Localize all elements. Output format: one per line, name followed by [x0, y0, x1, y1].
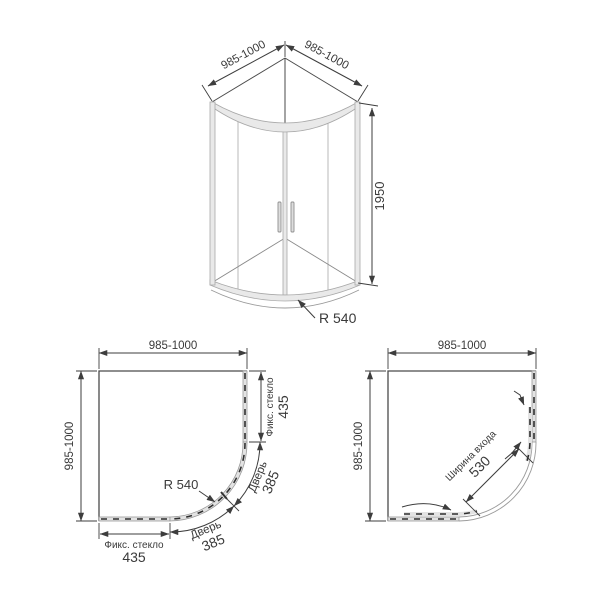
pc-dim-depth-label: 985-1000: [64, 422, 76, 471]
plan-open-view: 985-1000 985-1000 Ширина входа 530: [353, 340, 536, 521]
front-right-frame-post: [355, 102, 360, 285]
plan-closed-fixed-glass-side: [243, 371, 247, 442]
front-ext-height-top: [359, 103, 378, 106]
front-ext-corner-right: [358, 85, 368, 101]
front-dim-height-label: 1950: [372, 182, 387, 211]
front-radius-leader: [298, 300, 315, 318]
pc-ext-door-mid: [227, 499, 239, 511]
front-door-handle-left: [278, 202, 281, 232]
pc-fixed-bottom-value: 435: [122, 549, 146, 565]
plan-open-dimensions: 985-1000 985-1000 Ширина входа 530: [353, 340, 536, 521]
plan-closed-dimensions: 985-1000 985-1000 Фикс. стекло 435 Фикс.…: [64, 340, 291, 565]
plan-open-walls: [388, 371, 536, 521]
plan-closed-fixed-glass-bottom: [99, 517, 170, 521]
front-ext-corner-left: [202, 85, 212, 101]
plan-open-fixed-glass-bottom: [388, 517, 459, 521]
technical-drawing-page: 985-1000 985-1000 1950 R 540 985-1000: [0, 0, 600, 600]
plan-closed-view: 985-1000 985-1000 Фикс. стекло 435 Фикс.…: [64, 340, 291, 565]
front-center-door-stile: [283, 131, 287, 295]
front-ext-height-bottom: [358, 283, 378, 286]
plan-open-fixed-glass-side: [532, 371, 536, 442]
shower-enclosure-drawing: 985-1000 985-1000 1950 R 540 985-1000: [0, 0, 600, 600]
front-left-frame-post: [210, 102, 215, 285]
pc-radius-leader: [199, 491, 215, 502]
front-radius-label: R 540: [319, 310, 357, 326]
po-dim-depth-label: 985-1000: [353, 422, 365, 471]
pc-fixed-side-value: 435: [275, 395, 291, 419]
po-dim-width-label: 985-1000: [438, 340, 487, 352]
front-door-handle-right: [291, 202, 294, 232]
plan-open-door-bottom-arrow: [402, 504, 451, 510]
plan-closed-walls: [99, 371, 247, 521]
front-view: 985-1000 985-1000 1950 R 540: [202, 39, 387, 326]
pc-dim-width-label: 985-1000: [149, 340, 198, 352]
pc-radius-label: R 540: [164, 477, 199, 492]
plan-open-door-side-arrow-bottom: [505, 442, 521, 459]
plan-open-door-side-arrow-top: [514, 391, 524, 405]
